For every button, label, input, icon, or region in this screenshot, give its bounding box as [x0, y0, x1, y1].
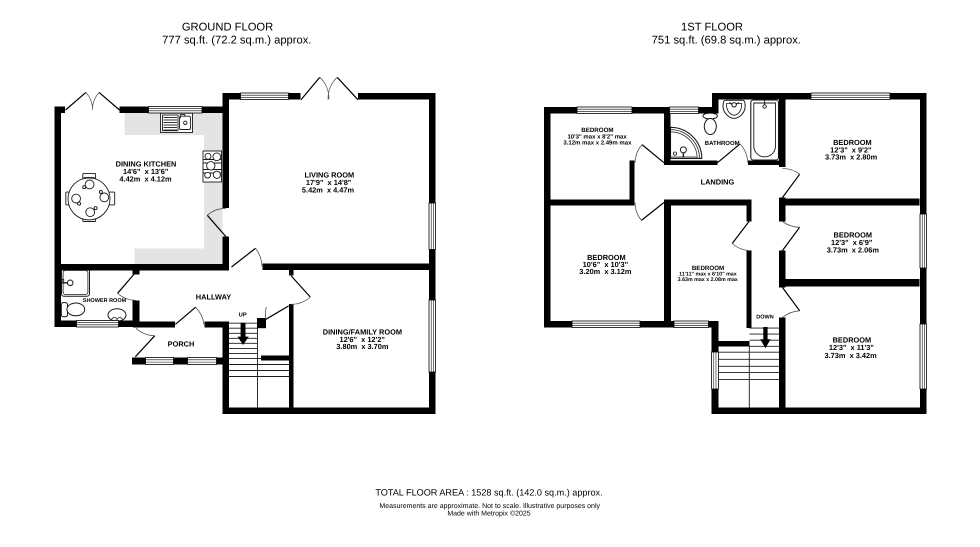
svg-text:HALLWAY: HALLWAY [196, 292, 232, 301]
svg-text:5.42m x 4.47m: 5.42m x 4.47m [302, 186, 355, 195]
svg-text:3.73m x 3.42m: 3.73m x 3.42m [825, 351, 878, 360]
svg-text:DOWN: DOWN [756, 315, 773, 321]
svg-text:3.80m x 3.70m: 3.80m x 3.70m [336, 342, 389, 351]
svg-text:3.20m x 3.12m: 3.20m x 3.12m [579, 267, 632, 276]
svg-text:3.73m x 2.80m: 3.73m x 2.80m [825, 153, 878, 162]
svg-text:3.63m max x 2.08m max: 3.63m max x 2.08m max [678, 277, 738, 283]
svg-text:1ST FLOOR: 1ST FLOOR [681, 22, 743, 34]
svg-text:751 sq.ft. (69.8 sq.m.) approx: 751 sq.ft. (69.8 sq.m.) approx. [652, 35, 801, 47]
svg-text:Measurements are approximate.: Measurements are approximate. Not to sca… [379, 502, 600, 510]
svg-text:PORCH: PORCH [168, 340, 195, 349]
svg-text:777 sq.ft. (72.2 sq.m.) approx: 777 sq.ft. (72.2 sq.m.) approx. [162, 35, 311, 47]
svg-text:TOTAL FLOOR AREA : 1528 sq.ft.: TOTAL FLOOR AREA : 1528 sq.ft. (142.0 sq… [375, 488, 602, 498]
svg-text:3.73m x 2.06m: 3.73m x 2.06m [827, 246, 880, 255]
svg-text:Made with Metropix ©2025: Made with Metropix ©2025 [447, 510, 530, 518]
svg-text:GROUND FLOOR: GROUND FLOOR [182, 22, 273, 34]
svg-text:LANDING: LANDING [701, 177, 735, 186]
svg-text:3.12m max x 2.49m max: 3.12m max x 2.49m max [563, 140, 632, 147]
svg-text:BATHROOM: BATHROOM [705, 140, 740, 147]
svg-text:SHOWER ROOM: SHOWER ROOM [83, 298, 127, 304]
svg-text:BEDROOM: BEDROOM [581, 127, 613, 134]
svg-text:UP: UP [239, 313, 247, 319]
svg-text:4.42m x 4.12m: 4.42m x 4.12m [119, 175, 172, 184]
